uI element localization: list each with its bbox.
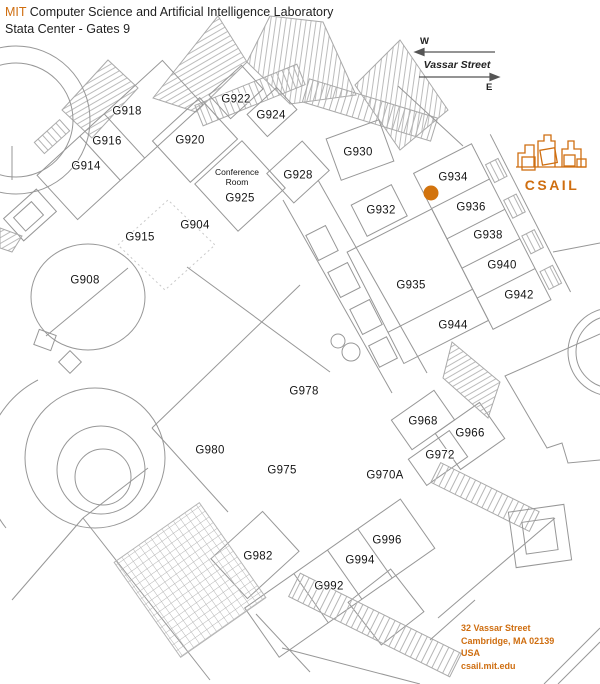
brand-mit: MIT	[5, 5, 26, 19]
room-label-g996: G996	[372, 536, 401, 547]
room-label-g992: G992	[314, 582, 343, 593]
title-text: Computer Science and Artificial Intellig…	[30, 5, 334, 19]
east-arrow-icon	[490, 74, 499, 81]
csail-logo-icon	[514, 131, 590, 171]
street-compass: W Vassar Street E	[413, 33, 515, 93]
room-label-g940: G940	[487, 261, 516, 272]
page-subtitle: Stata Center - Gates 9	[5, 21, 333, 38]
room-label-g935: G935	[396, 281, 425, 292]
room-label-g918: G918	[112, 107, 141, 118]
address-line: USA	[461, 647, 554, 660]
street-name-label: Vassar Street	[424, 59, 491, 71]
address-line: 32 Vassar Street	[461, 622, 554, 635]
room-label-g944: G944	[438, 321, 467, 332]
west-arrow-icon	[415, 49, 424, 56]
room-label-g972: G972	[425, 451, 454, 462]
room-label-g978: G978	[289, 387, 318, 398]
address-line: Cambridge, MA 02139	[461, 635, 554, 648]
room-label-g930: G930	[343, 148, 372, 159]
room-label-g938: G938	[473, 231, 502, 242]
room-label-g980: G980	[195, 446, 224, 457]
csail-wordmark: CSAIL	[512, 177, 592, 193]
room-label-g982: G982	[243, 552, 272, 563]
location-marker-dot	[424, 186, 439, 201]
room-label-g925: G925	[225, 194, 254, 205]
room-label-g970a: G970A	[366, 471, 403, 482]
room-label-g968: G968	[408, 417, 437, 428]
room-label-g966: G966	[455, 429, 484, 440]
address-block: 32 Vassar Street Cambridge, MA 02139 USA…	[461, 622, 554, 672]
east-label: E	[486, 82, 492, 93]
west-label: W	[420, 36, 429, 47]
room-label-g924: G924	[256, 111, 285, 122]
address-line: csail.mit.edu	[461, 660, 554, 673]
page-title: MIT Computer Science and Artificial Inte…	[5, 4, 333, 21]
room-label-g942: G942	[504, 291, 533, 302]
csail-logo: CSAIL	[512, 131, 592, 193]
room-label-g994: G994	[345, 556, 374, 567]
room-label-g920: G920	[175, 136, 204, 147]
room-label-conference-room: Conference Room	[215, 167, 259, 187]
room-label-g915: G915	[125, 233, 154, 244]
room-label-g904: G904	[180, 221, 209, 232]
room-label-g936: G936	[456, 203, 485, 214]
room-label-g914: G914	[71, 162, 100, 173]
room-label-g908: G908	[70, 276, 99, 287]
room-label-g916: G916	[92, 137, 121, 148]
room-label-g932: G932	[366, 206, 395, 217]
room-label-g922: G922	[221, 95, 250, 106]
room-label-g975: G975	[267, 466, 296, 477]
compass-arrows: W Vassar Street E	[413, 33, 515, 93]
floorplan-map: MIT Computer Science and Artificial Inte…	[0, 0, 600, 684]
room-label-g928: G928	[283, 171, 312, 182]
map-header: MIT Computer Science and Artificial Inte…	[5, 4, 333, 38]
room-label-g934: G934	[438, 173, 467, 184]
room-label-layer: G918G916G914G920G922G924Conference RoomG…	[0, 0, 600, 684]
